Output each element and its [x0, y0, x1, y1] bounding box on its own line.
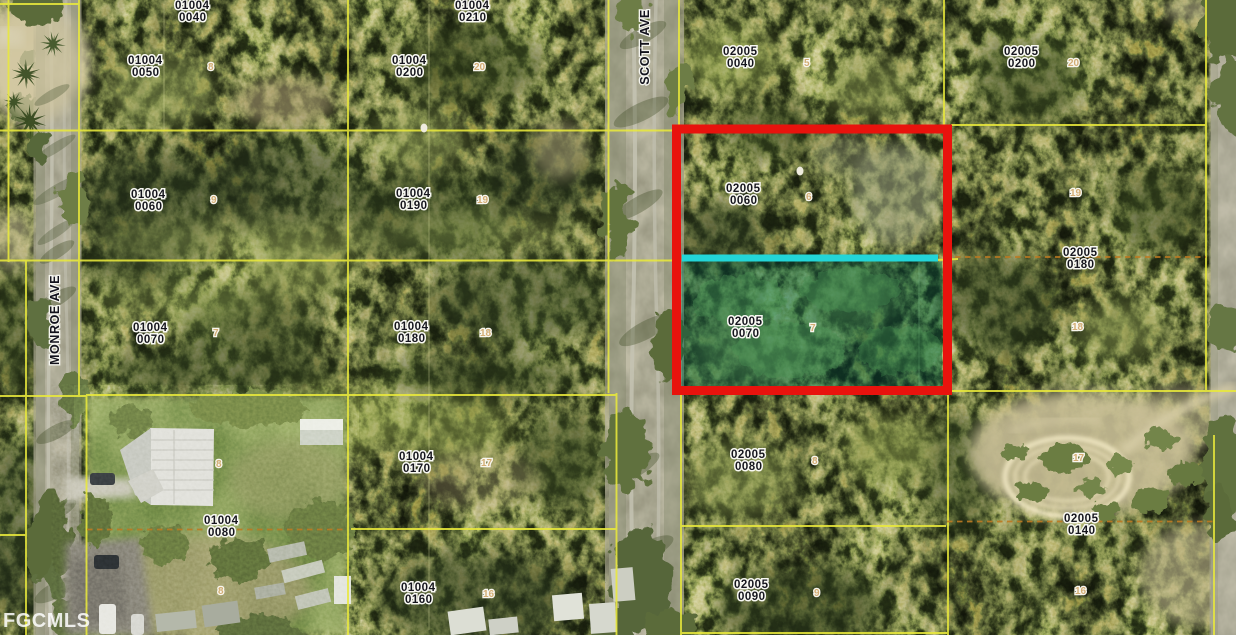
svg-text:20: 20	[474, 62, 486, 73]
svg-text:01004: 01004	[128, 55, 163, 67]
svg-text:8: 8	[812, 456, 818, 467]
svg-text:7: 7	[810, 323, 816, 334]
svg-text:16: 16	[483, 589, 495, 600]
svg-text:0070: 0070	[732, 328, 760, 340]
svg-text:8: 8	[208, 62, 214, 73]
svg-text:17: 17	[1073, 453, 1085, 464]
svg-text:02005: 02005	[1063, 247, 1098, 259]
svg-text:01004: 01004	[392, 55, 427, 67]
svg-text:01004: 01004	[204, 515, 239, 527]
svg-text:0190: 0190	[400, 200, 428, 212]
svg-text:01004: 01004	[401, 582, 436, 594]
svg-text:01004: 01004	[131, 189, 166, 201]
svg-text:0160: 0160	[405, 594, 433, 606]
svg-text:01004: 01004	[133, 322, 168, 334]
svg-text:0050: 0050	[132, 67, 160, 79]
svg-text:0180: 0180	[398, 333, 426, 345]
svg-text:01004: 01004	[396, 188, 431, 200]
svg-text:0080: 0080	[735, 461, 763, 473]
svg-text:02005: 02005	[728, 316, 763, 328]
svg-text:SCOTT AVE: SCOTT AVE	[638, 9, 652, 85]
svg-text:0060: 0060	[135, 201, 163, 213]
svg-text:02005: 02005	[1004, 46, 1039, 58]
svg-text:0080: 0080	[208, 527, 236, 539]
svg-text:16: 16	[1075, 586, 1087, 597]
svg-text:8: 8	[218, 586, 224, 597]
svg-text:01004: 01004	[394, 321, 429, 333]
svg-text:FGCMLS: FGCMLS	[3, 610, 90, 632]
svg-text:19: 19	[477, 195, 489, 206]
svg-text:9: 9	[211, 195, 217, 206]
svg-text:20: 20	[1068, 58, 1080, 69]
svg-text:9: 9	[814, 588, 820, 599]
svg-text:18: 18	[1072, 322, 1084, 333]
svg-text:18: 18	[480, 328, 492, 339]
svg-text:0040: 0040	[179, 12, 207, 24]
svg-text:5: 5	[804, 58, 810, 69]
svg-text:7: 7	[213, 328, 219, 339]
svg-text:0200: 0200	[1008, 58, 1036, 70]
svg-text:6: 6	[806, 192, 812, 203]
svg-text:0060: 0060	[730, 195, 758, 207]
svg-text:19: 19	[1070, 188, 1082, 199]
svg-text:0040: 0040	[727, 58, 755, 70]
svg-text:02005: 02005	[726, 183, 761, 195]
svg-text:0170: 0170	[403, 463, 431, 475]
svg-text:0090: 0090	[738, 591, 766, 603]
svg-text:01004: 01004	[399, 451, 434, 463]
svg-text:01004: 01004	[455, 0, 490, 12]
svg-text:0070: 0070	[137, 334, 165, 346]
svg-text:0180: 0180	[1067, 259, 1095, 271]
svg-text:0210: 0210	[459, 12, 487, 24]
svg-text:0200: 0200	[396, 67, 424, 79]
svg-text:02005: 02005	[723, 46, 758, 58]
svg-text:MONROE AVE: MONROE AVE	[48, 275, 62, 365]
svg-text:02005: 02005	[731, 449, 766, 461]
svg-text:8: 8	[216, 459, 222, 470]
svg-text:01004: 01004	[175, 0, 210, 12]
svg-text:0140: 0140	[1068, 525, 1096, 537]
svg-text:02005: 02005	[734, 579, 769, 591]
svg-text:17: 17	[481, 458, 493, 469]
svg-text:02005: 02005	[1064, 513, 1099, 525]
